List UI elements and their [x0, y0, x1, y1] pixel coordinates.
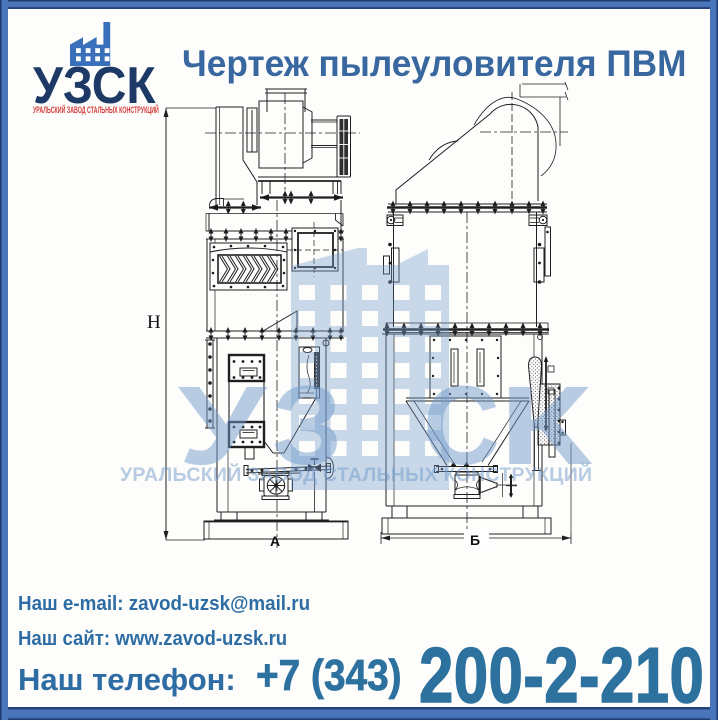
svg-text:УРАЛЬСКИЙ ЗАВОД СТАЛЬНЫХ КОНСТ: УРАЛЬСКИЙ ЗАВОД СТАЛЬНЫХ КОНСТРУКЦИЙ [120, 462, 592, 486]
svg-text:Б: Б [470, 532, 480, 548]
svg-text:А: А [270, 533, 280, 549]
svg-text:H: H [147, 312, 161, 333]
